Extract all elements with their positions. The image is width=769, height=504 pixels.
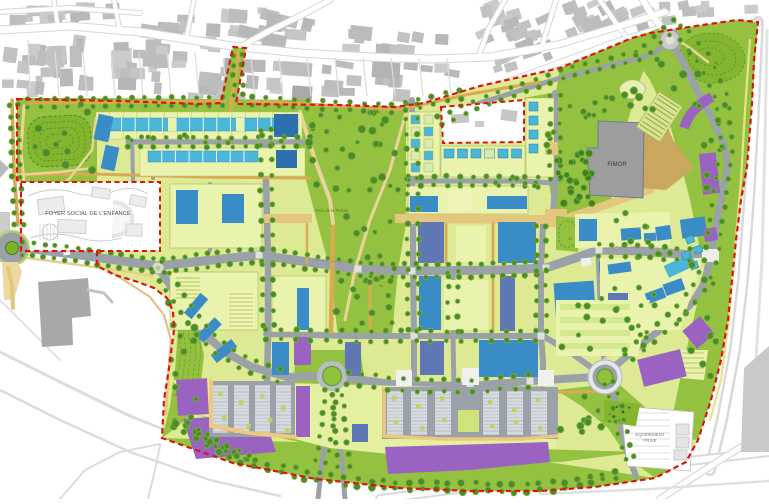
svg-text:Parc de la Pinède: Parc de la Pinède xyxy=(315,208,349,213)
svg-text:bt: bt xyxy=(569,237,572,241)
svg-text:bt: bt xyxy=(59,139,62,143)
svg-text:PRIVE: PRIVE xyxy=(643,438,656,443)
svg-text:bt: bt xyxy=(380,284,383,288)
svg-text:FOYER SOCIAL DE L'ENFANCE: FOYER SOCIAL DE L'ENFANCE xyxy=(45,211,131,217)
svg-text:EQUIPEMENT: EQUIPEMENT xyxy=(635,432,664,437)
svg-text:FIMOR: FIMOR xyxy=(607,162,627,168)
svg-text:bt: bt xyxy=(715,61,718,65)
svg-text:Rue de la Courbe: Rue de la Courbe xyxy=(612,245,640,249)
svg-text:bt: bt xyxy=(175,393,178,397)
